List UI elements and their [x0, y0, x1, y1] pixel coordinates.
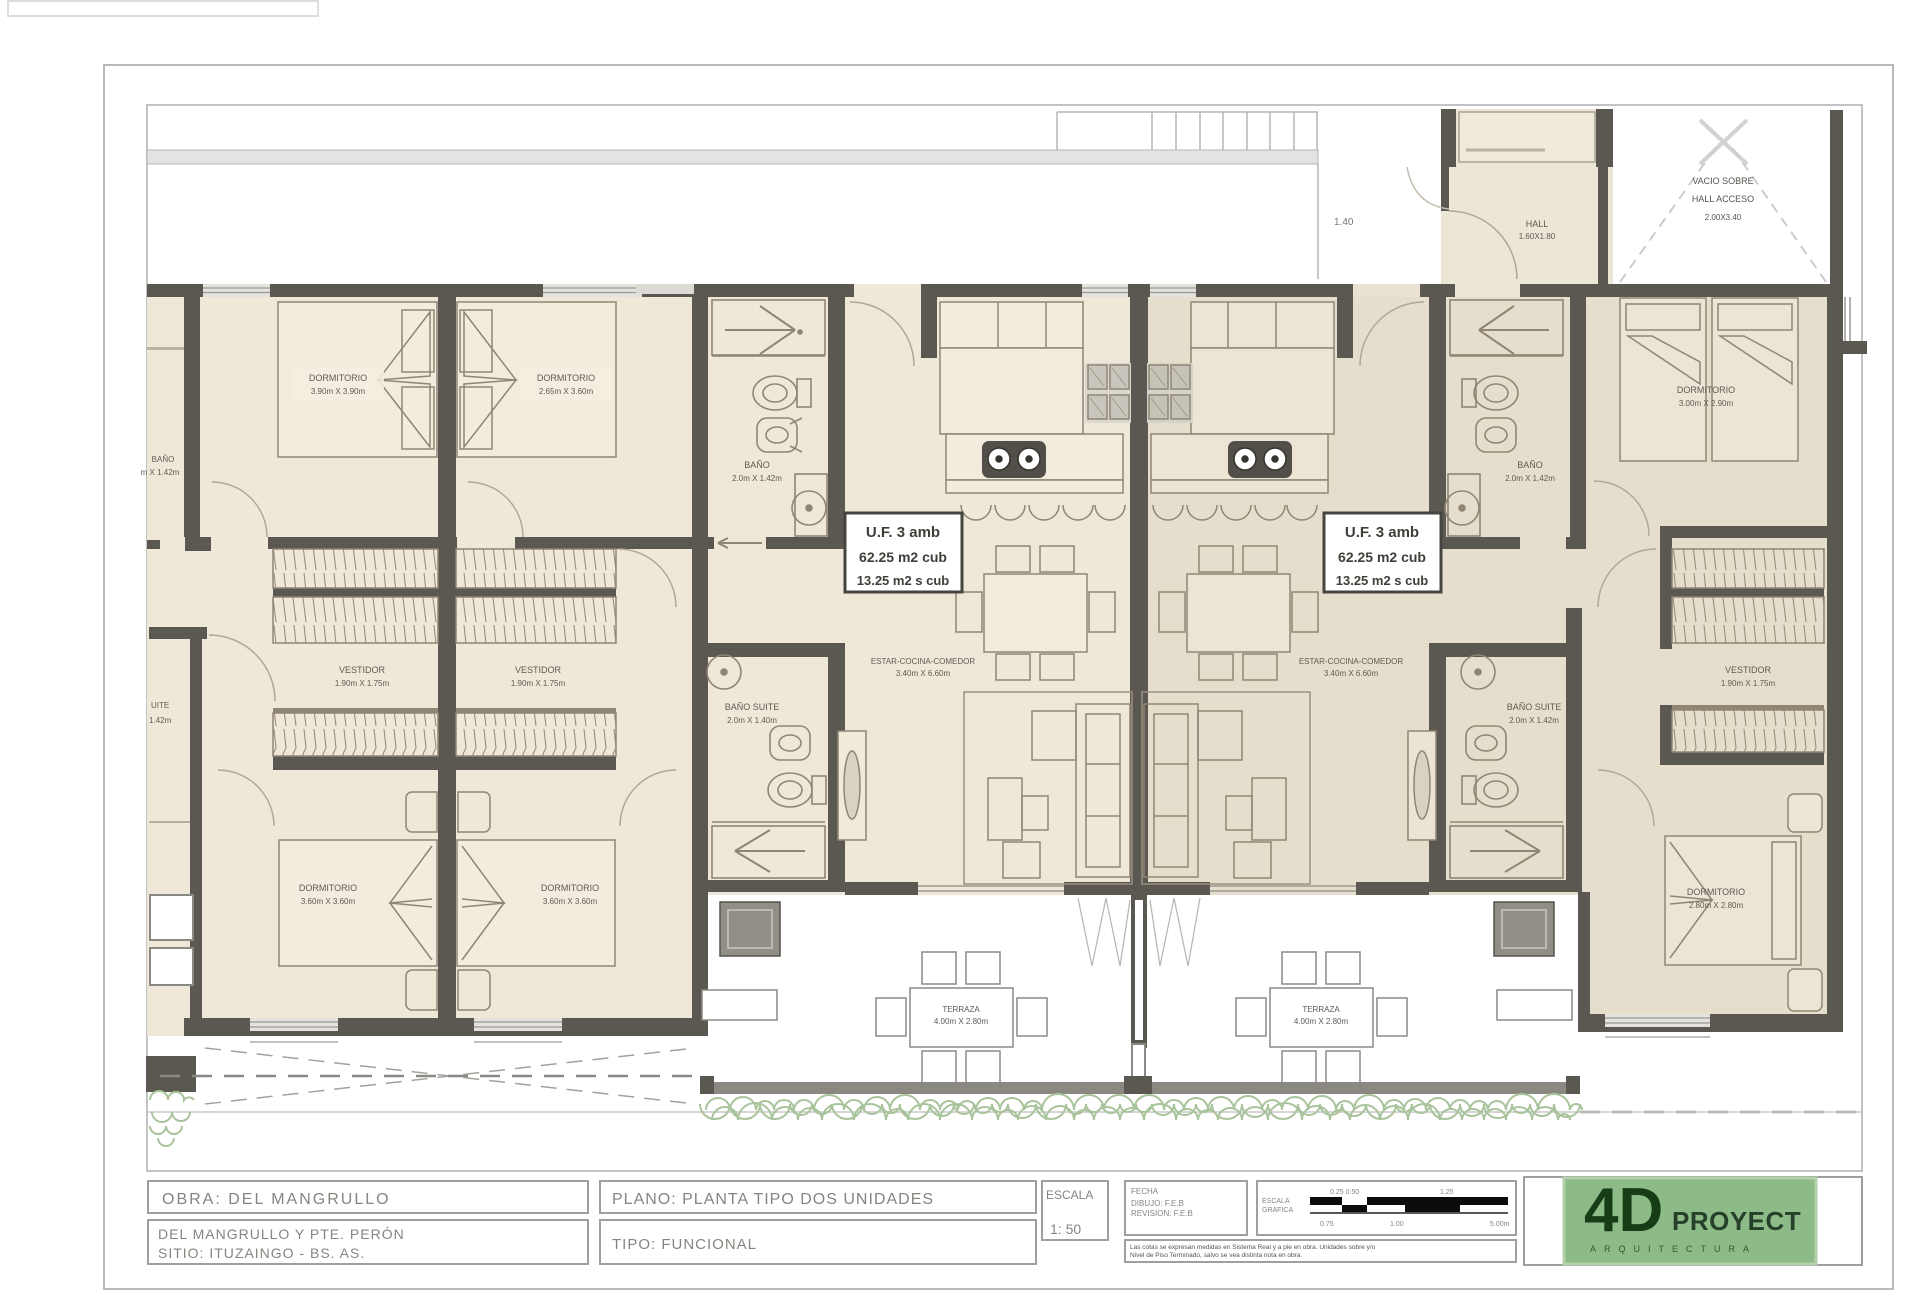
- svg-text:BAÑO: BAÑO: [1517, 460, 1543, 470]
- svg-text:3.00m X 2.90m: 3.00m X 2.90m: [1679, 399, 1734, 408]
- svg-text:0.25 0.50: 0.25 0.50: [1330, 1189, 1359, 1196]
- svg-text:1.90m X 1.75m: 1.90m X 1.75m: [511, 679, 566, 688]
- svg-text:1.40: 1.40: [1334, 217, 1354, 228]
- svg-text:3.40m X 6.60m: 3.40m X 6.60m: [1324, 669, 1379, 678]
- svg-text:3.90m X 3.90m: 3.90m X 3.90m: [311, 387, 366, 396]
- svg-text:1.42m: 1.42m: [149, 716, 172, 725]
- svg-text:4.00m X 2.80m: 4.00m X 2.80m: [934, 1017, 989, 1026]
- svg-text:13.25 m2 s cub: 13.25 m2 s cub: [1336, 573, 1429, 588]
- svg-text:2.0m X 1.42m: 2.0m X 1.42m: [1509, 716, 1559, 725]
- svg-text:TERRAZA: TERRAZA: [942, 1005, 980, 1014]
- svg-text:VESTIDOR: VESTIDOR: [515, 665, 562, 675]
- svg-text:TIPO: FUNCIONAL: TIPO: FUNCIONAL: [612, 1236, 757, 1253]
- svg-text:ESTAR-COCINA-COMEDOR: ESTAR-COCINA-COMEDOR: [1299, 657, 1404, 666]
- svg-text:UITE: UITE: [151, 701, 169, 710]
- svg-text:OBRA: DEL MANGRULLO: OBRA: DEL MANGRULLO: [162, 1191, 391, 1208]
- svg-text:2.0m X 1.42m: 2.0m X 1.42m: [1505, 474, 1555, 483]
- svg-text:DORMITORIO: DORMITORIO: [541, 883, 599, 893]
- svg-text:PROYECT: PROYECT: [1672, 1206, 1801, 1236]
- svg-text:HALL ACCESO: HALL ACCESO: [1692, 194, 1754, 204]
- svg-text:0.75: 0.75: [1320, 1221, 1334, 1228]
- svg-text:SITIO: ITUZAINGO - BS. AS.: SITIO: ITUZAINGO - BS. AS.: [158, 1245, 365, 1261]
- svg-text:1.90m X 1.75m: 1.90m X 1.75m: [335, 679, 390, 688]
- svg-text:DORMITORIO: DORMITORIO: [309, 373, 367, 383]
- svg-text:3.60m X 3.60m: 3.60m X 3.60m: [301, 897, 356, 906]
- svg-text:TERRAZA: TERRAZA: [1302, 1005, 1340, 1014]
- svg-text:1.90m X 1.75m: 1.90m X 1.75m: [1721, 679, 1776, 688]
- svg-text:GRAFICA: GRAFICA: [1262, 1207, 1293, 1214]
- svg-text:3.60m X 3.60m: 3.60m X 3.60m: [543, 897, 598, 906]
- svg-text:1.00: 1.00: [1390, 1221, 1404, 1228]
- svg-text:2.80m X 2.80m: 2.80m X 2.80m: [1689, 901, 1744, 910]
- svg-text:2.00X3.40: 2.00X3.40: [1705, 213, 1742, 222]
- svg-text:DORMITORIO: DORMITORIO: [1687, 887, 1745, 897]
- svg-text:ESTAR-COCINA-COMEDOR: ESTAR-COCINA-COMEDOR: [871, 657, 976, 666]
- svg-text:FECHA: FECHA: [1131, 1187, 1159, 1196]
- svg-text:DORMITORIO: DORMITORIO: [537, 373, 595, 383]
- svg-text:BAÑO: BAÑO: [152, 455, 175, 464]
- svg-text:U.F. 3 amb: U.F. 3 amb: [866, 524, 940, 541]
- svg-text:1.25: 1.25: [1440, 1189, 1454, 1196]
- svg-text:3.40m X 6.60m: 3.40m X 6.60m: [896, 669, 951, 678]
- svg-text:VESTIDOR: VESTIDOR: [339, 665, 386, 675]
- svg-text:m X 1.42m: m X 1.42m: [141, 468, 180, 477]
- svg-text:PLANO: PLANTA TIPO DOS UNI: PLANO: PLANTA TIPO DOS UNIDADES: [612, 1191, 934, 1208]
- svg-text:BAÑO SUITE: BAÑO SUITE: [1507, 702, 1562, 712]
- svg-text:Nivel de Piso Terminado, salvo: Nivel de Piso Terminado, salvo se vea di…: [1130, 1252, 1302, 1259]
- svg-text:ARQUITECTURA: ARQUITECTURA: [1590, 1244, 1757, 1254]
- svg-text:4D: 4D: [1584, 1176, 1663, 1245]
- svg-text:DIBUJO: F.E.B: DIBUJO: F.E.B: [1131, 1199, 1184, 1208]
- svg-text:2.0m X 1.42m: 2.0m X 1.42m: [732, 474, 782, 483]
- svg-text:ESCALA: ESCALA: [1046, 1188, 1093, 1202]
- svg-text:DORMITORIO: DORMITORIO: [299, 883, 357, 893]
- svg-text:REVISION: F.E.B: REVISION: F.E.B: [1131, 1209, 1193, 1218]
- svg-text:13.25 m2 s cub: 13.25 m2 s cub: [857, 573, 950, 588]
- svg-text:VESTIDOR: VESTIDOR: [1725, 665, 1772, 675]
- svg-text:4.00m X 2.80m: 4.00m X 2.80m: [1294, 1017, 1349, 1026]
- svg-text:BAÑO: BAÑO: [744, 460, 770, 470]
- svg-text:1.60X1.80: 1.60X1.80: [1519, 232, 1556, 241]
- svg-text:VACIO SOBRE: VACIO SOBRE: [1692, 176, 1753, 186]
- svg-text:5.00m: 5.00m: [1490, 1221, 1510, 1228]
- svg-text:ESCALA: ESCALA: [1262, 1198, 1290, 1205]
- svg-text:62.25 m2 cub: 62.25 m2 cub: [1338, 549, 1426, 565]
- svg-text:DORMITORIO: DORMITORIO: [1677, 385, 1735, 395]
- svg-text:2.65m X 3.60m: 2.65m X 3.60m: [539, 387, 594, 396]
- svg-text:62.25 m2 cub: 62.25 m2 cub: [859, 549, 947, 565]
- svg-text:2.0m X 1.40m: 2.0m X 1.40m: [727, 716, 777, 725]
- svg-text:HALL: HALL: [1526, 219, 1549, 229]
- svg-text:U.F. 3 amb: U.F. 3 amb: [1345, 524, 1419, 541]
- svg-text:Las cotas se expresan medidas: Las cotas se expresan medidas en Sistema…: [1130, 1244, 1376, 1251]
- svg-text:BAÑO SUITE: BAÑO SUITE: [725, 702, 780, 712]
- svg-text:DEL MANGRULLO Y PTE. PERÓN: DEL MANGRULLO Y PTE. PERÓN: [158, 1226, 405, 1242]
- svg-text:1: 50: 1: 50: [1050, 1221, 1081, 1237]
